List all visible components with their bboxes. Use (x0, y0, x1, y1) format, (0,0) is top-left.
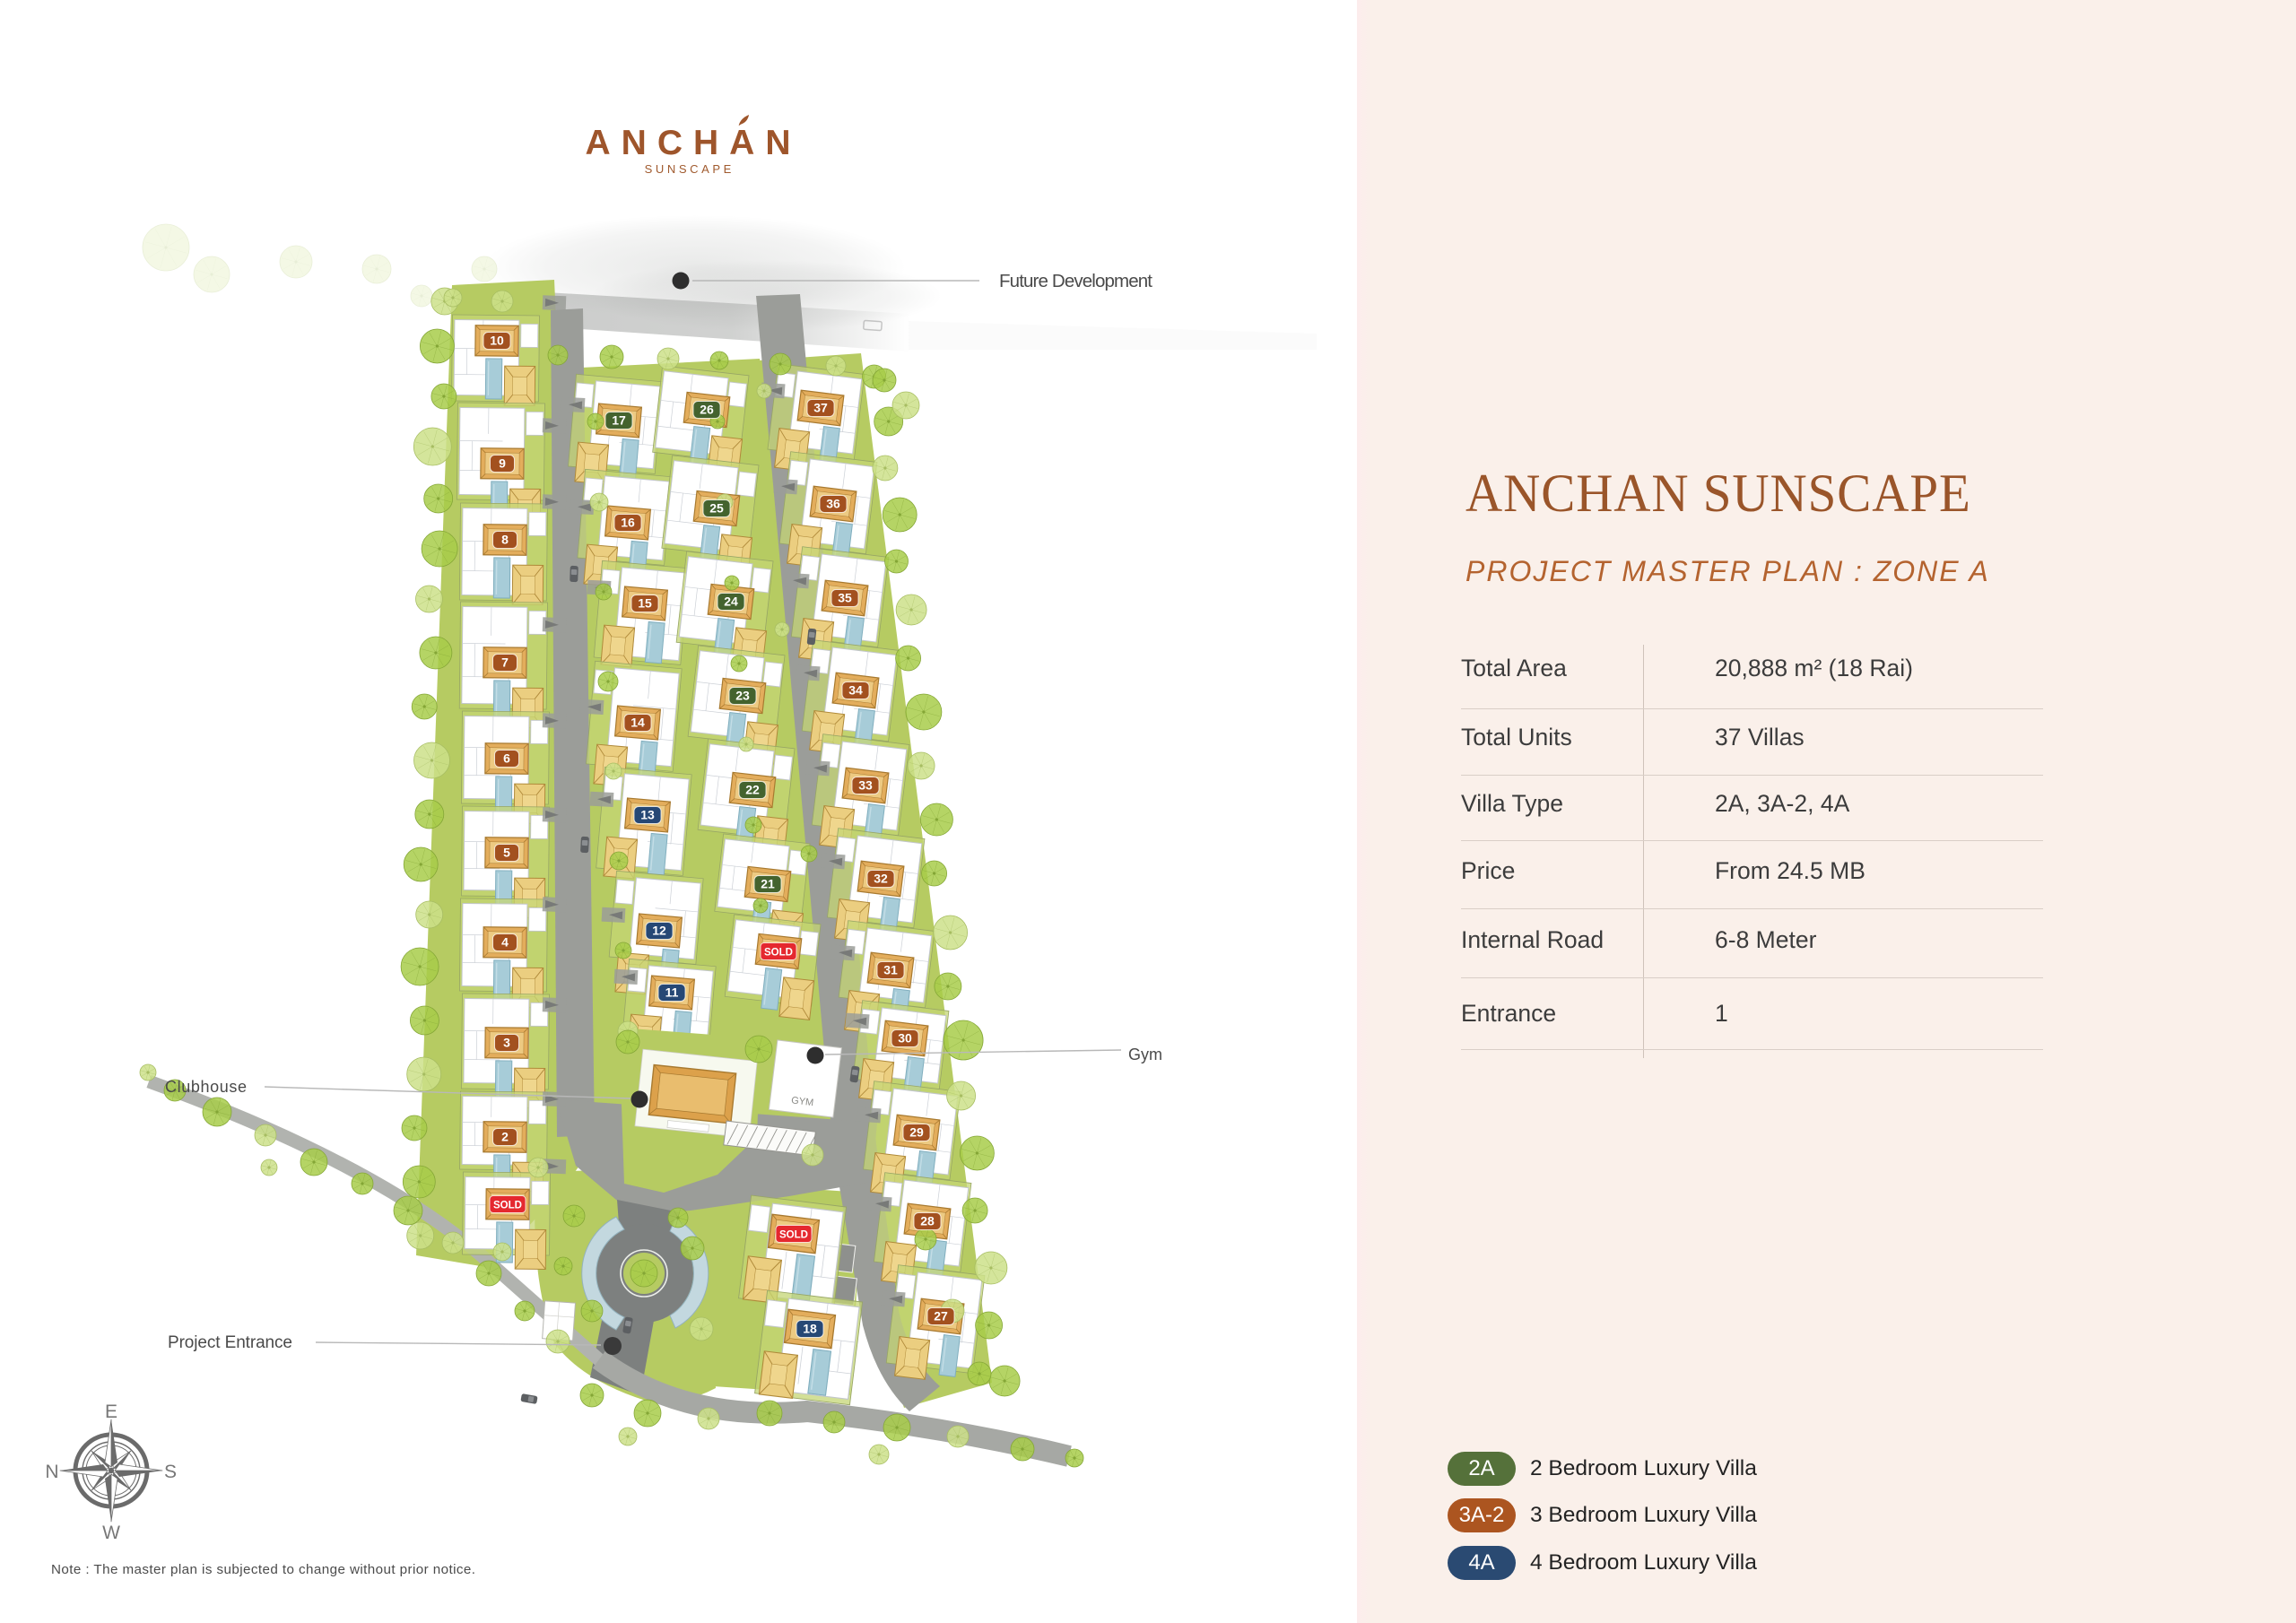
svg-text:27: 27 (934, 1309, 948, 1324)
svg-text:Clubhouse: Clubhouse (165, 1078, 247, 1096)
svg-text:S: S (164, 1462, 177, 1482)
svg-text:26: 26 (700, 403, 714, 417)
svg-text:23: 23 (735, 689, 750, 703)
svg-text:30: 30 (898, 1031, 912, 1046)
svg-text:12: 12 (652, 924, 666, 938)
svg-text:32: 32 (874, 872, 888, 886)
svg-text:3: 3 (503, 1036, 510, 1050)
svg-text:29: 29 (909, 1125, 924, 1140)
svg-text:15: 15 (638, 596, 652, 611)
svg-text:18: 18 (803, 1322, 817, 1336)
svg-text:Note : The master plan is subj: Note : The master plan is subjected to c… (51, 1562, 475, 1577)
svg-text:4: 4 (501, 935, 509, 950)
svg-text:SOLD: SOLD (764, 948, 793, 959)
svg-text:28: 28 (920, 1214, 935, 1228)
svg-text:36: 36 (826, 497, 840, 511)
svg-text:N: N (45, 1462, 58, 1482)
svg-text:33: 33 (858, 778, 873, 793)
svg-text:16: 16 (621, 516, 635, 530)
svg-text:11: 11 (665, 985, 679, 1000)
svg-text:Project Entrance: Project Entrance (168, 1333, 292, 1352)
svg-text:31: 31 (883, 963, 898, 977)
svg-text:34: 34 (848, 683, 863, 698)
svg-text:6: 6 (503, 751, 510, 766)
svg-text:35: 35 (838, 591, 852, 605)
svg-text:17: 17 (612, 413, 626, 428)
svg-text:9: 9 (499, 456, 506, 471)
svg-text:W: W (102, 1523, 120, 1543)
svg-text:SOLD: SOLD (493, 1201, 522, 1211)
svg-text:24: 24 (724, 595, 738, 609)
svg-text:8: 8 (501, 533, 509, 547)
svg-text:37: 37 (813, 401, 828, 415)
svg-text:25: 25 (709, 501, 724, 516)
svg-text:SOLD: SOLD (779, 1230, 808, 1241)
svg-text:E: E (105, 1402, 117, 1422)
svg-text:10: 10 (490, 334, 504, 348)
svg-text:2: 2 (501, 1130, 509, 1144)
svg-text:13: 13 (640, 808, 655, 822)
svg-text:14: 14 (631, 716, 645, 730)
svg-text:21: 21 (761, 877, 775, 891)
svg-text:Future Development: Future Development (999, 271, 1152, 291)
svg-text:Gym: Gym (1128, 1046, 1162, 1063)
svg-text:7: 7 (501, 655, 509, 670)
svg-text:5: 5 (503, 846, 510, 860)
svg-text:22: 22 (745, 783, 760, 797)
